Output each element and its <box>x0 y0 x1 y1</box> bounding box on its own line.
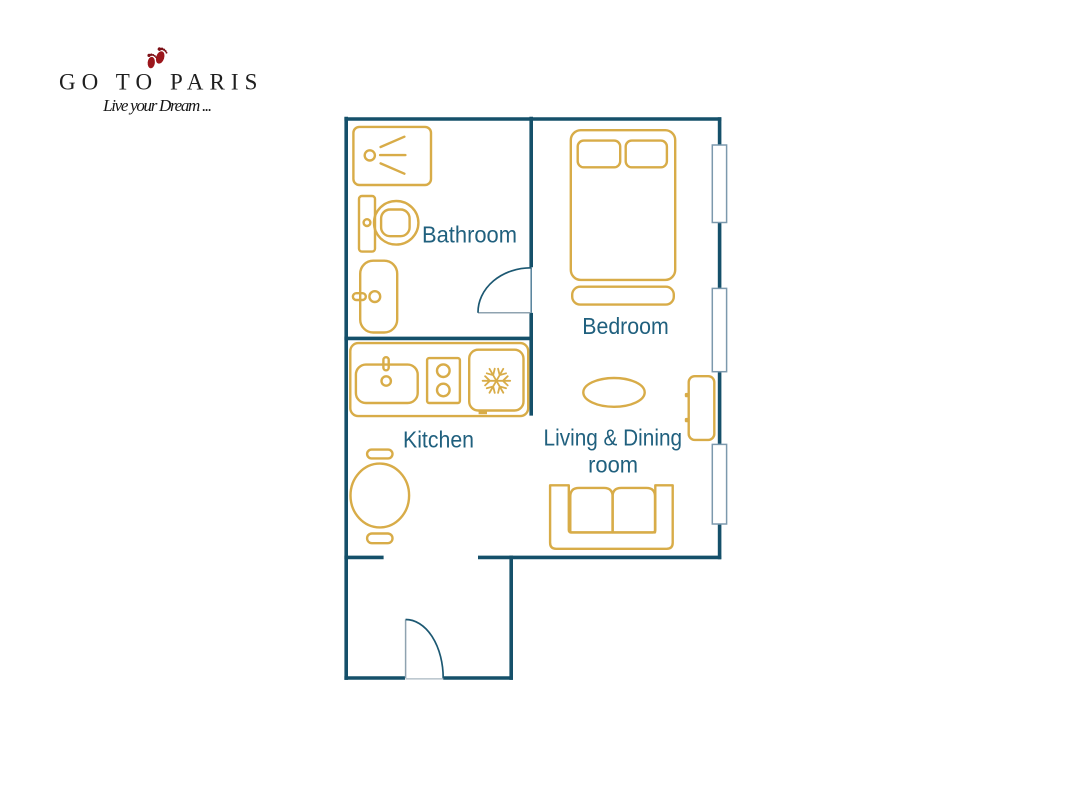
svg-text:room: room <box>588 452 638 478</box>
svg-text:Kitchen: Kitchen <box>403 427 474 453</box>
svg-text:Living & Dining: Living & Dining <box>544 425 683 451</box>
svg-text:Live your Dream ...: Live your Dream ... <box>102 96 212 115</box>
svg-text:Bedroom: Bedroom <box>582 313 669 339</box>
svg-text:Bathroom: Bathroom <box>422 221 517 247</box>
svg-text:GO TO PARIS: GO TO PARIS <box>59 69 258 94</box>
